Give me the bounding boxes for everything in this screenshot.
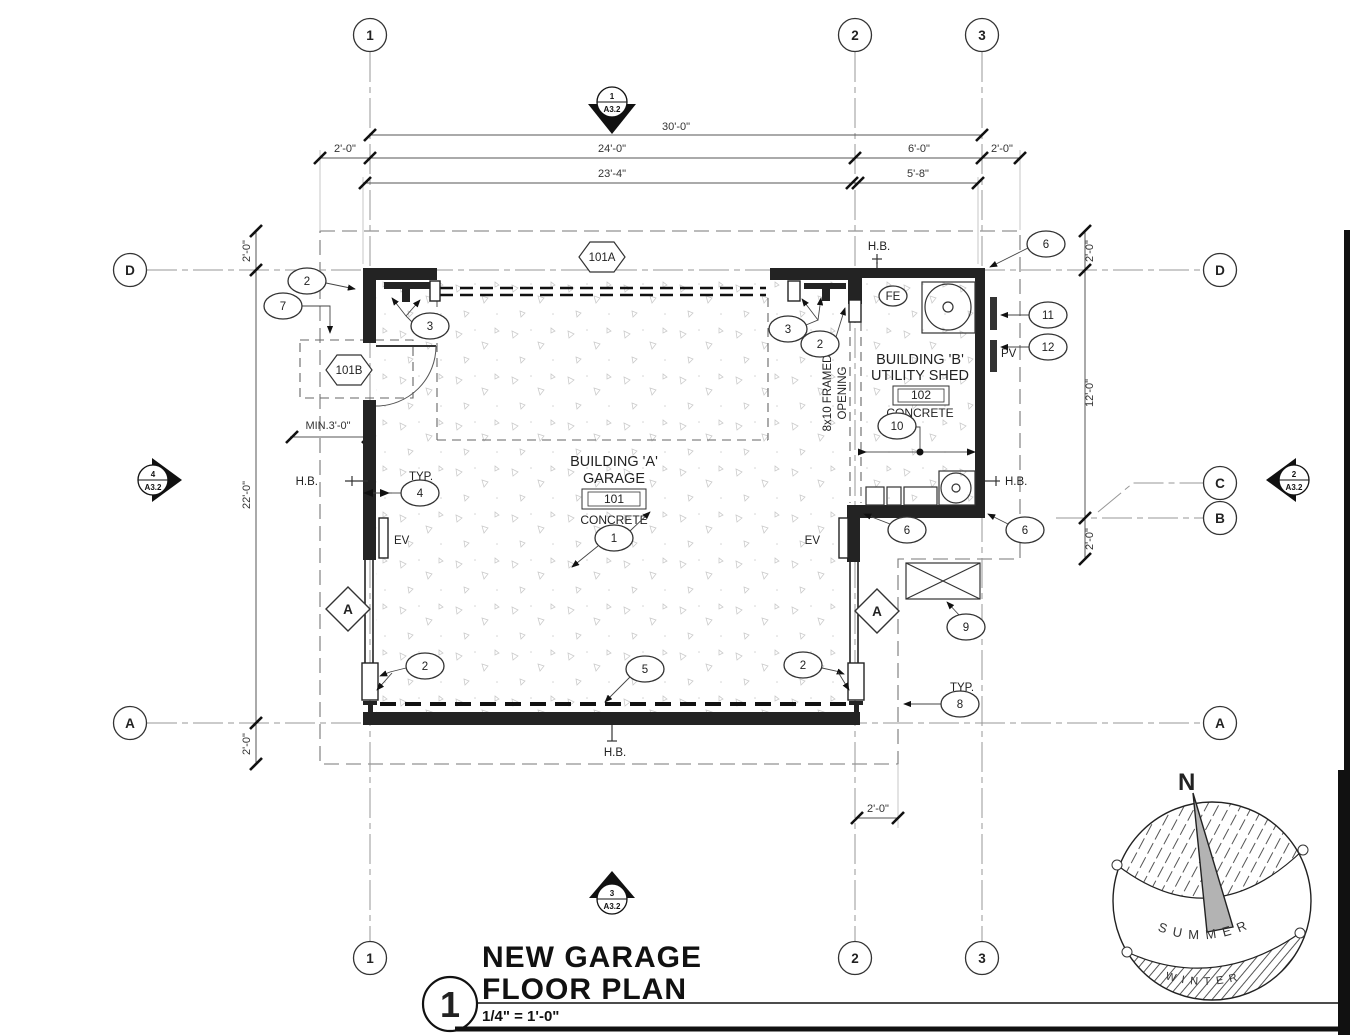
callout-1-room: 1 (595, 525, 633, 551)
pv-label: PV (1001, 348, 1017, 360)
svg-text:4: 4 (151, 470, 156, 479)
svg-text:101B: 101B (336, 365, 363, 377)
grid-1-bottom: 1 (366, 951, 374, 966)
callout-5: 5 (626, 656, 664, 682)
typ-label-4: TYP. (409, 471, 433, 483)
callout-12: 12 (1029, 334, 1067, 360)
callout-10: 10 (878, 413, 916, 439)
concrete-floor-texture (376, 276, 975, 712)
svg-text:4: 4 (417, 488, 424, 500)
exterior-pad (906, 563, 980, 599)
callout-2-topleft: 2 (288, 268, 326, 294)
svg-text:2: 2 (422, 661, 428, 673)
svg-text:FE: FE (886, 291, 901, 303)
section-marker-left: 4 A3.2 (138, 458, 182, 502)
svg-text:6: 6 (1022, 525, 1028, 537)
callout-11: 11 (1029, 302, 1067, 328)
grid-3-bottom: 3 (978, 951, 986, 966)
svg-text:2: 2 (817, 339, 823, 351)
dim-left-height: 22'-0" (241, 481, 253, 509)
room-b-name2: UTILITY SHED (871, 368, 969, 384)
svg-text:11: 11 (1042, 310, 1054, 322)
dim-garage-clear: 23'-4" (598, 168, 626, 180)
svg-text:7: 7 (280, 301, 286, 313)
dim-shed-clear: 5'-8" (907, 168, 929, 180)
drawing-scale: 1/4" = 1'-0" (482, 1008, 559, 1025)
section-marker-right: 2 A3.2 (1266, 458, 1309, 502)
svg-text:8: 8 (957, 699, 963, 711)
svg-text:3: 3 (785, 324, 791, 336)
dim-overall: 30'-0" (662, 121, 690, 133)
svg-text:A: A (343, 602, 353, 617)
callout-2-right: 2 (801, 331, 839, 357)
sun-path-diagram: N SUMMER WINTER (1112, 760, 1311, 1010)
section-marker-top: 1 A3.2 (588, 87, 636, 134)
room-a-label: BUILDING 'A' GARAGE 101 CONCRETE (570, 454, 658, 527)
grid-2-top: 2 (851, 28, 859, 43)
svg-text:A3.2: A3.2 (1286, 483, 1303, 492)
hb-label-bottom: H.B. (604, 747, 626, 759)
dim-offset-left: 2'-0" (334, 143, 356, 155)
grid-b-right: B (1215, 511, 1225, 526)
typ-label-8: TYP. (950, 682, 974, 694)
door-tag-101a: 101A (579, 242, 625, 272)
svg-text:10: 10 (891, 421, 904, 433)
dim-offset-right: 2'-0" (991, 143, 1013, 155)
section-marker-bottom: 3 A3.2 (589, 871, 635, 914)
callout-8: 8 (941, 691, 979, 717)
room-b-number: 102 (911, 388, 931, 402)
wall-tag-left: A (326, 587, 370, 631)
svg-text:5: 5 (642, 664, 648, 676)
svg-text:2: 2 (304, 276, 310, 288)
svg-text:1: 1 (611, 533, 617, 545)
dim-left-bottom: 2'-0" (241, 733, 253, 755)
callout-7: 7 (264, 293, 302, 319)
grid-a-left: A (125, 716, 135, 731)
svg-text:A3.2: A3.2 (604, 902, 621, 911)
callout-2-bottomleft: 2 (406, 653, 444, 679)
room-a-number: 101 (604, 492, 624, 506)
fire-extinguisher-tag: FE (879, 286, 907, 306)
pv-panels (990, 297, 997, 372)
svg-text:12: 12 (1042, 342, 1055, 354)
callout-3-left: 3 (411, 313, 449, 339)
detail-number: 1 (440, 984, 460, 1025)
door-tag-101b: 101B (326, 355, 372, 385)
drawing-title-line2: FLOOR PLAN (482, 973, 687, 1006)
room-a-name1: BUILDING 'A' (570, 454, 658, 470)
svg-text:9: 9 (963, 622, 969, 634)
sheet-border-right (1338, 230, 1350, 1035)
svg-text:3: 3 (610, 889, 615, 898)
room-a-name2: GARAGE (583, 471, 645, 487)
svg-text:3: 3 (427, 321, 433, 333)
dim-min-clear: MIN.3'-0" (305, 420, 350, 432)
svg-text:6: 6 (904, 525, 910, 537)
svg-text:2: 2 (1292, 470, 1297, 479)
svg-text:A: A (872, 604, 882, 619)
wall-tag-right: A (855, 589, 899, 633)
dim-right-top: 2'-0" (1084, 240, 1096, 262)
svg-text:A3.2: A3.2 (604, 105, 621, 114)
floor-plan-drawing: 30'-0" 2'-0" 24'-0" 6'-0" 2'-0" 23'-4" 5… (0, 0, 1350, 1035)
svg-text:6: 6 (1043, 239, 1049, 251)
drawing-title-line1: NEW GARAGE (482, 941, 702, 974)
dim-bottom-offset: 2'-0" (867, 803, 889, 815)
callout-6-top: 6 (1027, 231, 1065, 257)
hb-label-top: H.B. (868, 241, 890, 253)
dim-left-top: 2'-0" (241, 240, 253, 262)
grid-d-left: D (125, 263, 135, 278)
callout-4: 4 (401, 480, 439, 506)
hb-label-left: H.B. (296, 476, 318, 488)
ev-label-right: EV (805, 535, 821, 547)
svg-text:1: 1 (610, 92, 615, 101)
north-label: N (1178, 769, 1195, 796)
callout-6-shed-left: 6 (888, 517, 926, 543)
svg-text:A3.2: A3.2 (145, 483, 162, 492)
grid-3-top: 3 (978, 28, 986, 43)
callout-9: 9 (947, 614, 985, 640)
callout-2-bottomright: 2 (784, 652, 822, 678)
callout-3-right: 3 (769, 316, 807, 342)
room-b-name1: BUILDING 'B' (876, 352, 964, 368)
floor-plan-sheet: 30'-0" 2'-0" 24'-0" 6'-0" 2'-0" 23'-4" 5… (0, 0, 1350, 1035)
ev-label-left: EV (394, 535, 410, 547)
grid-2-bottom: 2 (851, 951, 859, 966)
callout-6-shed-right: 6 (1006, 517, 1044, 543)
grid-c-right: C (1215, 476, 1225, 491)
dim-shed-width: 6'-0" (908, 143, 930, 155)
hb-label-right: H.B. (1005, 476, 1027, 488)
dim-right-bottom: 2'-0" (1084, 528, 1096, 550)
dim-shed-height: 12'-0" (1084, 379, 1096, 407)
grid-d-right: D (1215, 263, 1225, 278)
svg-text:101A: 101A (589, 252, 616, 264)
grid-a-right: A (1215, 716, 1225, 731)
framed-opening-line1: 8x10 FRAMED (822, 355, 834, 432)
grid-1-top: 1 (366, 28, 374, 43)
svg-text:2: 2 (800, 660, 806, 672)
dim-garage-width: 24'-0" (598, 143, 626, 155)
framed-opening-line2: OPENING (837, 366, 849, 419)
